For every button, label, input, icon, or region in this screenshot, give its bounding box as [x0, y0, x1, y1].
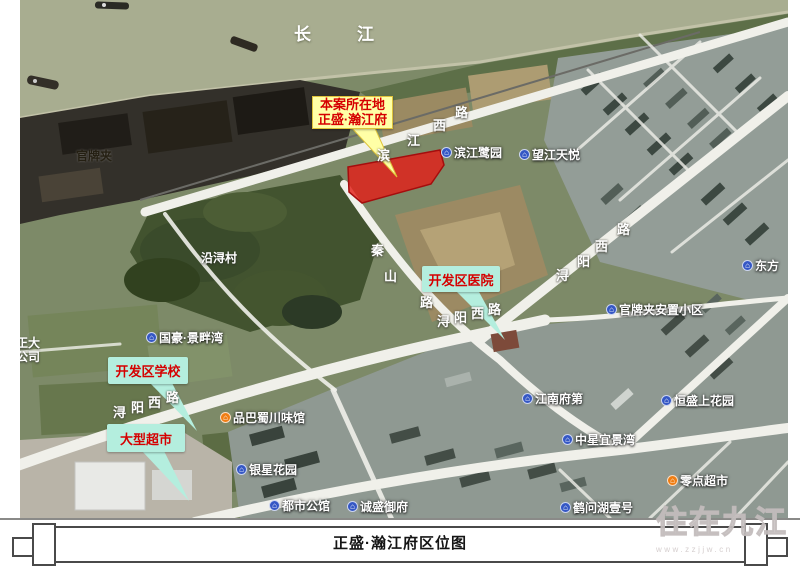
area-label: 沿浔村 — [201, 249, 237, 266]
poi-label: ⌂江南府第 — [522, 390, 583, 407]
map-title: 正盛·瀚江府区位图 — [0, 532, 800, 553]
building-icon: ⌂ — [606, 304, 617, 315]
poi-label-text: 零点超市 — [680, 472, 728, 489]
poi-label-text: 品巴蜀川味馆 — [233, 409, 305, 426]
road-name-char: 山 — [384, 266, 397, 285]
poi-label: ⌂恒盛上花园 — [661, 392, 734, 409]
footer-bar: 正盛·瀚江府区位图 — [0, 520, 800, 571]
poi-label: ⌂官牌夹安置小区 — [606, 301, 703, 318]
poi-label: ⌂都市公馆 — [269, 497, 330, 514]
building-icon: ⌂ — [519, 149, 530, 160]
poi-label-text: 滨江鹭园 — [454, 144, 502, 161]
building-icon: ⌂ — [562, 434, 573, 445]
road-name-char: 路 — [166, 387, 179, 406]
building-icon: ⌂ — [269, 500, 280, 511]
poi-label: ⌂零点超市 — [667, 472, 728, 489]
poi-label-text: 恒盛上花园 — [674, 392, 734, 409]
map-labels-layer: 长江 江正大 料公司 本案所在地 正盛·瀚江府 ⌂滨江鹭园⌂望江天悦⌂东方⌂官牌… — [20, 0, 788, 518]
supermarket-callout: 大型超市 — [107, 424, 185, 452]
poi-label: ⌂望江天悦 — [519, 146, 580, 163]
road-name-char: 路 — [455, 102, 468, 121]
road-name-char: 路 — [488, 299, 501, 318]
road-name-char: 滨 — [377, 145, 390, 164]
poi-label: ⌂国豪·景畔湾 — [146, 329, 223, 346]
building-icon: ⌂ — [441, 147, 452, 158]
shop-icon: ⌂ — [667, 475, 678, 486]
poi-label: ⌂东方 — [742, 257, 779, 274]
building-icon: ⌂ — [661, 395, 672, 406]
site-callout: 本案所在地 正盛·瀚江府 — [312, 96, 393, 129]
road-name-char: 浔 — [556, 265, 569, 284]
building-icon: ⌂ — [522, 393, 533, 404]
road-name-char: 阳 — [454, 307, 467, 326]
building-icon: ⌂ — [236, 464, 247, 475]
road-name-char: 阳 — [131, 397, 144, 416]
road-name-char: 西 — [471, 303, 484, 322]
poi-label-text: 官牌夹安置小区 — [619, 301, 703, 318]
road-name-char: 浔 — [113, 402, 126, 421]
road-name-char: 浔 — [437, 311, 450, 330]
road-name-char: 阳 — [577, 251, 590, 270]
road-name-char: 西 — [148, 392, 161, 411]
road-name-char: 路 — [420, 292, 433, 311]
building-icon: ⌂ — [347, 501, 358, 512]
road-name-char: 西 — [595, 236, 608, 255]
road-name-char: 西 — [433, 115, 446, 134]
poi-label-text: 国豪·景畔湾 — [159, 329, 223, 346]
poi-label-text: 望江天悦 — [532, 146, 580, 163]
road-name-char: 秦 — [371, 240, 384, 259]
road-name-char: 江 — [407, 130, 420, 149]
poi-label-text: 银星花园 — [249, 461, 297, 478]
poi-label-text: 鹤问湖壹号 — [573, 499, 633, 516]
poi-label-text: 诚盛御府 — [360, 498, 408, 515]
poi-label-text: 江南府第 — [535, 390, 583, 407]
poi-label: ⌂鹤问湖壹号 — [560, 499, 633, 516]
poi-label: ⌂诚盛御府 — [347, 498, 408, 515]
poi-label: ⌂中星宜景湾 — [562, 431, 635, 448]
river-name-label: 长江 — [294, 20, 420, 45]
building-icon: ⌂ — [742, 260, 753, 271]
restaurant-icon: ⌂ — [220, 412, 231, 423]
road-name-char: 路 — [617, 219, 630, 238]
area-label: 官牌夹 — [76, 147, 112, 164]
building-icon: ⌂ — [146, 332, 157, 343]
poi-label-text: 东方 — [755, 257, 779, 274]
poi-label: ⌂品巴蜀川味馆 — [220, 409, 305, 426]
poi-label-text: 中星宜景湾 — [575, 431, 635, 448]
poi-label-text: 都市公馆 — [282, 497, 330, 514]
school-callout: 开发区学校 — [108, 357, 188, 384]
poi-label: ⌂滨江鹭园 — [441, 144, 502, 161]
building-icon: ⌂ — [560, 502, 571, 513]
poi-label: ⌂银星花园 — [236, 461, 297, 478]
hospital-callout: 开发区医院 — [422, 266, 500, 292]
clipped-company-label: 江正大 料公司 — [20, 336, 40, 364]
